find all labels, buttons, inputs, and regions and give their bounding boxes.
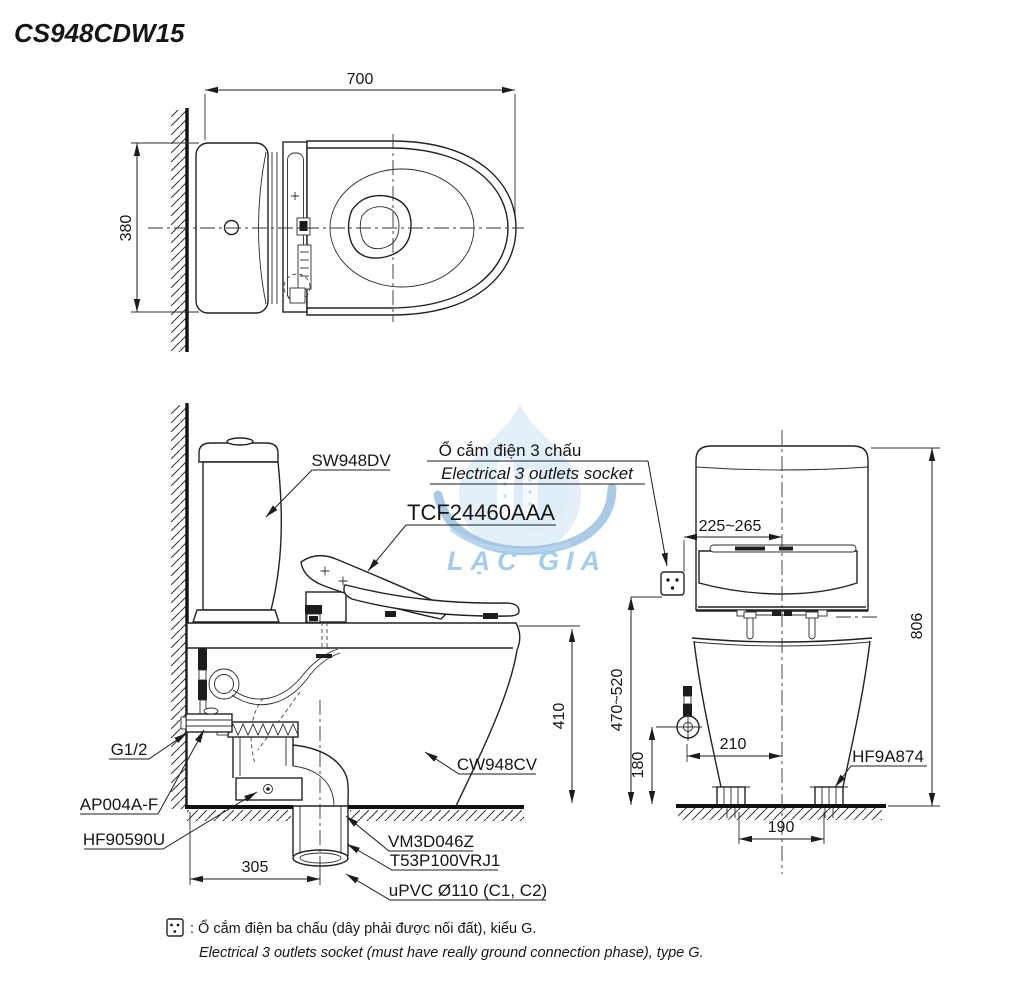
wall-hatching bbox=[171, 110, 187, 352]
label-socket-en: Electrical 3 outlets socket bbox=[441, 464, 634, 483]
dim-valve-offset-value: 210 bbox=[720, 736, 747, 753]
dim-socket-offset-value: 225~265 bbox=[699, 518, 762, 535]
tank-side-outline bbox=[203, 462, 281, 610]
rear-view: 225~265 470~520 180 210 190 806 HF9A874 bbox=[609, 430, 940, 874]
label-pipe-spec: uPVC Ø110 (C1, C2) bbox=[389, 881, 547, 900]
watermark-text: LẠC GIA bbox=[447, 546, 607, 576]
dim-valve-height-value: 180 bbox=[630, 752, 647, 779]
label-washlet-code: TCF24460AAA bbox=[407, 500, 555, 525]
label-joint-code: T53P100VRJ1 bbox=[390, 851, 501, 870]
dim-outlet-value: 305 bbox=[242, 859, 269, 876]
dim-width-value: 700 bbox=[347, 71, 374, 88]
label-tank-code: SW948DV bbox=[311, 451, 391, 470]
floor-hatching bbox=[350, 810, 524, 821]
socket-3pin-icon bbox=[167, 919, 183, 936]
washlet-rear-outline bbox=[699, 551, 857, 594]
stop-valve bbox=[186, 714, 232, 732]
label-bowl-code: CW948CV bbox=[457, 755, 538, 774]
label-flange-code: HF90590U bbox=[83, 830, 165, 849]
dim-total-height-value: 806 bbox=[909, 613, 926, 640]
footnote-en: Electrical 3 outlets socket (must have r… bbox=[199, 945, 704, 961]
label-socket-vi: Ổ cắm điện 3 chấu bbox=[439, 441, 582, 460]
tank-lid bbox=[199, 443, 278, 462]
product-code-title: CS948CDW15 bbox=[14, 18, 185, 48]
pipe-opening bbox=[293, 850, 348, 866]
wall-hatching bbox=[171, 405, 187, 809]
label-valve-code: AP004A-F bbox=[80, 795, 158, 814]
socket-3pin-icon bbox=[661, 572, 684, 595]
dim-depth-value: 380 bbox=[118, 215, 135, 242]
technical-drawing: LẠC GIA CS948CDW15 700 380 bbox=[0, 0, 1024, 987]
drawing-page: LẠC GIA CS948CDW15 700 380 bbox=[0, 0, 1024, 987]
dim-socket-height-value: 470~520 bbox=[609, 669, 626, 732]
top-view: 700 380 bbox=[118, 71, 524, 352]
dim-seat-height-value: 410 bbox=[551, 703, 568, 730]
dim-bolt-span-value: 190 bbox=[768, 819, 795, 836]
label-outlet-code: VM3D046Z bbox=[388, 832, 474, 851]
watermark-logo: LẠC GIA bbox=[438, 404, 612, 576]
footnote: : Ổ cắm điện ba chấu (dây phải được nối … bbox=[167, 919, 704, 961]
footnote-vi: : Ổ cắm điện ba chấu (dây phải được nối … bbox=[190, 919, 536, 937]
side-view: 410 305 SW948DV TCF24460AAA Ổ cắm điện 3… bbox=[80, 403, 667, 900]
label-supply-thread: G1/2 bbox=[111, 740, 148, 759]
floor-hatching bbox=[187, 810, 291, 821]
label-bolt-code: HF9A874 bbox=[852, 747, 924, 766]
